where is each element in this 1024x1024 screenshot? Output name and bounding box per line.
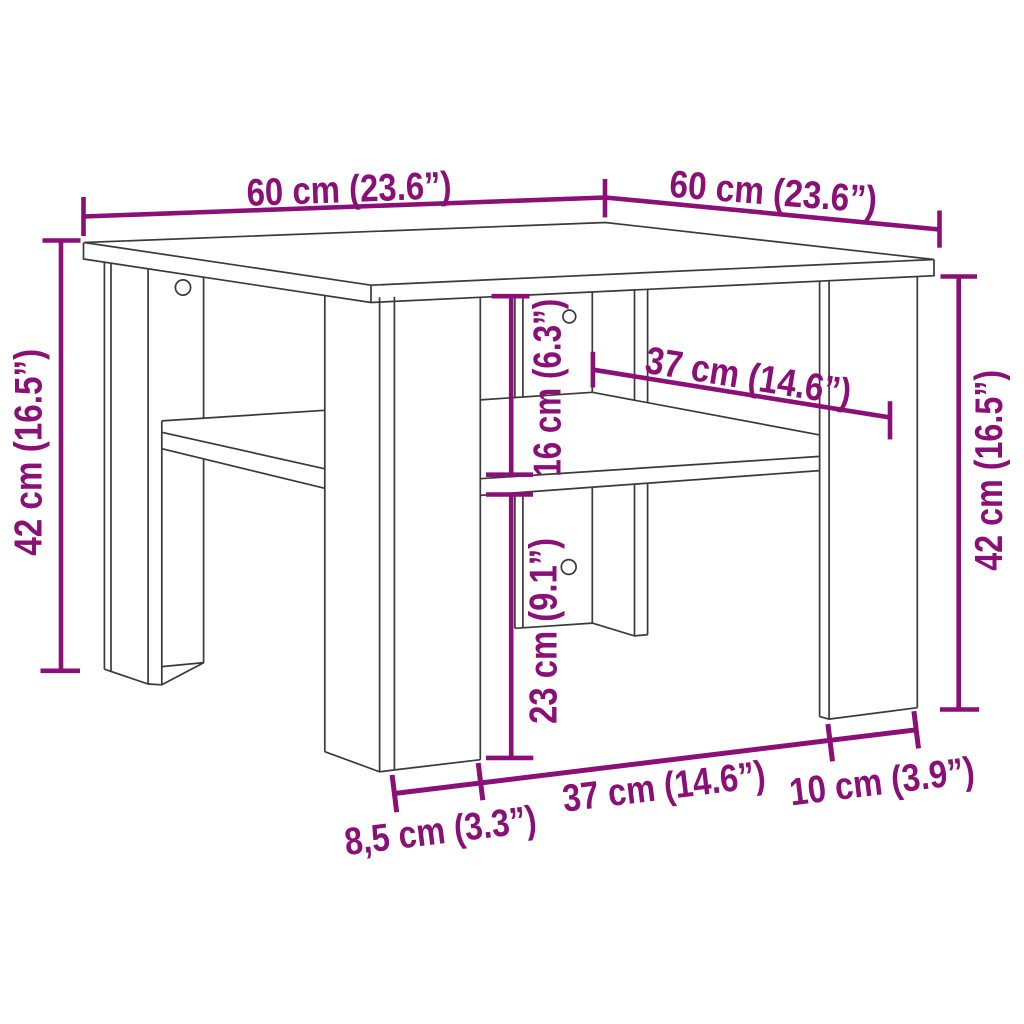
svg-text:16 cm (6.3”): 16 cm (6.3”) — [527, 299, 570, 477]
svg-text:60 cm (23.6”): 60 cm (23.6”) — [246, 164, 452, 215]
svg-text:42 cm (16.5”): 42 cm (16.5”) — [968, 370, 1011, 571]
svg-text:23 cm (9.1”): 23 cm (9.1”) — [523, 538, 566, 724]
svg-text:42 cm (16.5”): 42 cm (16.5”) — [7, 349, 50, 556]
